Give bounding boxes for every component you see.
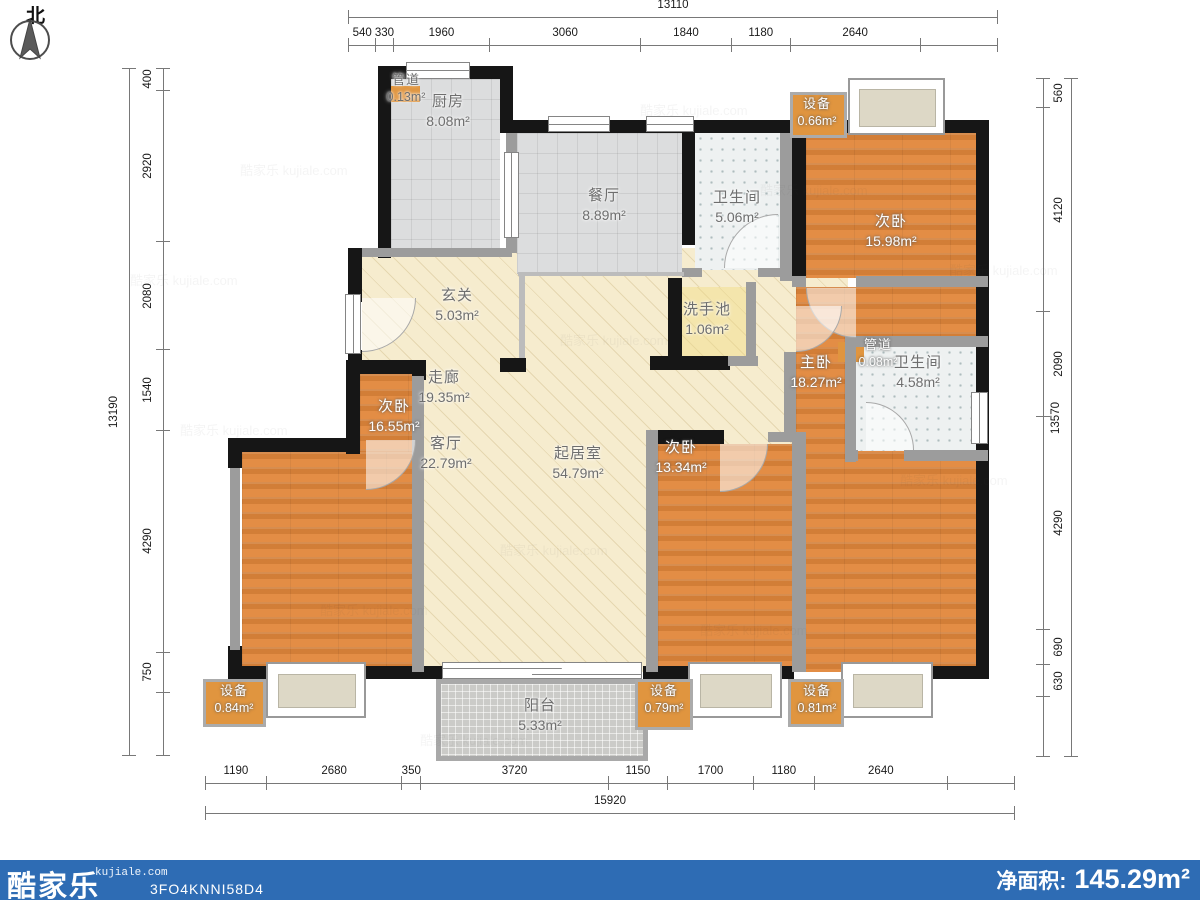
dim-value: 2640 xyxy=(868,765,894,777)
wall-segment xyxy=(682,268,702,277)
dim-value: 2640 xyxy=(842,27,868,39)
dim-value: 2080 xyxy=(142,283,154,309)
wall-segment xyxy=(346,360,360,454)
dim-segment: 2640 xyxy=(790,38,920,52)
watermark-text: 酷家乐 kujiale.com xyxy=(180,420,288,439)
room-label-bed-left: 次卧16.55m² xyxy=(368,397,419,435)
dim-segment: 560 xyxy=(1036,78,1050,107)
balcony-sliding-door xyxy=(442,662,642,679)
watermark-text: 酷家乐 kujiale.com xyxy=(560,330,668,349)
dim-value: 3060 xyxy=(552,27,578,39)
net-area-label: 净面积: xyxy=(996,865,1066,895)
dim-right-segments: 560412020904290690630 xyxy=(1036,78,1050,757)
dim-segment: 1540 xyxy=(156,349,170,429)
dim-segment: 3720 xyxy=(420,776,608,790)
dim-value: 750 xyxy=(142,663,154,682)
dim-value: 540 xyxy=(353,27,372,39)
dim-left-segments: 4002920208015404290750 xyxy=(156,68,170,756)
room-label-bed-top-right: 次卧15.98m² xyxy=(865,212,916,250)
bay-window-bottom-left-sill xyxy=(278,674,356,708)
room-label-bed-mid: 次卧13.34m² xyxy=(655,438,706,476)
room-label-balcony: 阳台5.33m² xyxy=(518,696,562,734)
dim-value: 3720 xyxy=(502,765,528,777)
dim-segment: 3060 xyxy=(489,38,640,52)
room-bed-top-right-floor xyxy=(806,133,976,278)
dim-value: 13110 xyxy=(657,0,688,11)
dim-left-total: 13190 xyxy=(122,68,136,756)
dim-segment: 1190 xyxy=(205,776,266,790)
dim-segment: 1150 xyxy=(608,776,667,790)
dim-segment: 690 xyxy=(1036,629,1050,664)
dim-segment: 2080 xyxy=(156,241,170,349)
room-label-pipe-right: 管道0.08m² xyxy=(859,337,898,370)
room-label-bath-top: 卫生间5.06m² xyxy=(713,188,761,226)
dim-segment: 1180 xyxy=(753,776,813,790)
dim-value: 1700 xyxy=(698,765,724,777)
wall-segment xyxy=(682,133,695,245)
dim-segment: 1700 xyxy=(667,776,753,790)
wall-segment xyxy=(746,282,756,358)
wall-segment xyxy=(230,468,240,650)
dim-segment xyxy=(947,776,1015,790)
dim-value: 13570 xyxy=(1050,402,1062,434)
bay-window-top-right-sill xyxy=(859,89,936,127)
room-label-bath-master: 卫生间4.58m² xyxy=(894,353,942,391)
dim-value: 1180 xyxy=(748,27,773,39)
dim-segment: 2680 xyxy=(266,776,402,790)
room-label-corridor: 走廊19.35m² xyxy=(418,368,469,406)
dim-segment: 4290 xyxy=(156,430,170,652)
wall-segment xyxy=(650,356,730,370)
dim-segment: 4120 xyxy=(1036,107,1050,312)
wall-segment xyxy=(358,666,444,679)
room-label-equip-left: 设备0.84m² xyxy=(215,683,254,716)
bay-window-bottom-right-sill xyxy=(853,674,923,708)
room-label-master: 主卧18.27m² xyxy=(790,353,841,391)
wall-segment xyxy=(792,276,806,287)
dim-value: 1180 xyxy=(771,765,796,777)
dim-segment: 330 xyxy=(375,38,392,52)
dim-value: 1190 xyxy=(224,765,249,777)
plan-code: 3FO4KNNI58D4 xyxy=(150,881,264,897)
dim-value: 350 xyxy=(402,765,421,777)
dim-value: 2920 xyxy=(142,153,154,179)
dim-segment: 13110 xyxy=(348,10,998,24)
dim-bottom-segments: 1190268035037201150170011802640 xyxy=(205,776,1015,790)
dim-segment: 13570 xyxy=(1064,78,1078,757)
room-label-family: 起居室54.79m² xyxy=(552,444,603,482)
brand-site: kujiale.com xyxy=(95,867,168,879)
wall-segment xyxy=(758,268,792,277)
dim-value: 1150 xyxy=(626,765,651,777)
room-label-foyer: 玄关5.03m² xyxy=(435,286,479,324)
dim-value: 2680 xyxy=(321,765,347,777)
watermark-text: 酷家乐 kujiale.com xyxy=(900,470,1008,489)
wall-segment xyxy=(904,450,988,461)
wall-segment xyxy=(228,646,242,679)
bay-window-bottom-mid-sill xyxy=(700,674,772,708)
wall-segment xyxy=(228,438,360,452)
bath-master-window xyxy=(971,392,988,444)
watermark-text: 酷家乐 kujiale.com xyxy=(240,160,348,179)
dim-value: 330 xyxy=(375,27,394,39)
dim-segment: 540 xyxy=(348,38,375,52)
dim-segment: 1180 xyxy=(731,38,790,52)
wall-segment xyxy=(519,276,525,358)
room-label-equip-top: 设备0.66m² xyxy=(798,96,837,129)
dim-segment xyxy=(156,692,170,756)
net-area: 净面积: 145.29m² xyxy=(996,864,1190,895)
room-label-dining: 餐厅8.89m² xyxy=(582,186,626,224)
compass-north-icon xyxy=(8,16,54,62)
dim-segment: 1960 xyxy=(393,38,490,52)
watermark-text: 酷家乐 kujiale.com xyxy=(640,100,748,119)
dim-top-segments: 54033019603060184011802640 xyxy=(348,38,998,52)
room-label-living: 客厅22.79m² xyxy=(420,434,471,472)
dim-top-total: 13110 xyxy=(348,10,998,24)
dim-segment: 400 xyxy=(156,68,170,90)
dim-value: 400 xyxy=(142,70,154,89)
wall-segment xyxy=(668,278,682,362)
room-label-equip-right: 设备0.81m² xyxy=(798,683,837,716)
dim-value: 1840 xyxy=(673,27,699,39)
dim-segment: 2090 xyxy=(1036,311,1050,415)
dim-segment xyxy=(920,38,998,52)
wall-segment xyxy=(228,438,242,468)
watermark-text: 酷家乐 kujiale.com xyxy=(320,600,428,619)
dim-bottom-total: 15920 xyxy=(205,806,1015,820)
dim-value: 15920 xyxy=(594,795,626,807)
room-label-kitchen: 厨房8.08m² xyxy=(426,92,470,130)
wall-segment xyxy=(362,248,512,257)
room-label-pipe-top: 管道0.13m² xyxy=(387,72,426,105)
dim-segment: 750 xyxy=(156,652,170,692)
wall-segment xyxy=(845,336,856,462)
footer-bar: 酷家乐 kujiale.com 3FO4KNNI58D4 净面积: 145.29… xyxy=(0,860,1200,900)
dim-segment: 630 xyxy=(1036,664,1050,696)
dim-segment: 13190 xyxy=(122,68,136,756)
watermark-text: 酷家乐 kujiale.com xyxy=(760,180,868,199)
dim-value: 13190 xyxy=(108,396,120,428)
kitchen-dining-window xyxy=(504,152,519,238)
brand-logo: 酷家乐 xyxy=(7,863,100,900)
wall-segment xyxy=(845,450,858,461)
room-label-washbasin: 洗手池1.06m² xyxy=(683,300,731,338)
watermark-text: 酷家乐 kujiale.com xyxy=(700,620,808,639)
entrance-door-frame xyxy=(345,294,361,354)
dim-value: 4290 xyxy=(142,529,154,555)
watermark-text: 酷家乐 kujiale.com xyxy=(500,540,608,559)
wall-segment xyxy=(518,272,684,276)
net-area-value: 145.29m² xyxy=(1074,864,1190,895)
dim-segment: 2640 xyxy=(814,776,948,790)
dim-segment: 15920 xyxy=(205,806,1015,820)
dim-right-total: 13570 xyxy=(1064,78,1078,757)
dim-segment: 350 xyxy=(401,776,420,790)
dim-value: 1960 xyxy=(429,27,455,39)
dim-segment: 1840 xyxy=(640,38,731,52)
wall-segment xyxy=(728,356,758,366)
wall-segment xyxy=(768,432,794,442)
wall-segment xyxy=(780,133,792,281)
dining-window xyxy=(548,116,610,132)
wall-segment xyxy=(792,120,806,282)
dim-value: 1540 xyxy=(142,377,154,403)
dim-segment: 4290 xyxy=(1036,416,1050,629)
wall-segment xyxy=(928,666,989,679)
watermark-text: 酷家乐 kujiale.com xyxy=(420,730,528,749)
floorplan-page: 北 xyxy=(0,0,1200,900)
wall-segment xyxy=(500,358,526,372)
dim-segment xyxy=(1036,696,1050,757)
room-label-equip-mid: 设备0.79m² xyxy=(645,683,684,716)
dim-segment: 2920 xyxy=(156,90,170,242)
wall-segment xyxy=(500,66,513,128)
